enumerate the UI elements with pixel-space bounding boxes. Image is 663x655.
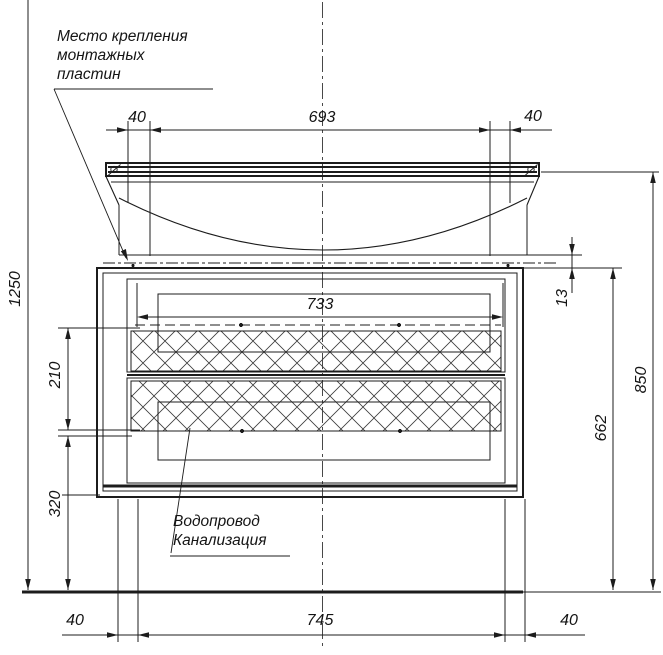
technical-drawing: Место крепления монтажных пластин Водопр… [0, 0, 663, 655]
dim-top-693: 693 [309, 109, 336, 127]
plumbing-note: Водопровод Канализация [173, 512, 267, 550]
dim-1250: 1250 [7, 271, 25, 307]
dim-top-40-right: 40 [524, 108, 542, 126]
dim-13: 13 [554, 289, 572, 307]
plumbing-note-line-2: Канализация [173, 531, 267, 550]
basin-curve [119, 198, 527, 250]
rim-corner-detail [109, 165, 538, 176]
mounting-plate-mark-left [131, 264, 134, 267]
dim-662: 662 [593, 415, 611, 442]
dim-320: 320 [47, 491, 65, 518]
plumbing-note-line-1: Водопровод [173, 512, 267, 531]
dim-bottom-40-right: 40 [560, 612, 578, 630]
mounting-note-leader [54, 89, 126, 258]
mounting-plate-mark-right [506, 264, 509, 267]
dimension-lines [28, 0, 653, 635]
dim-bottom-745: 745 [307, 612, 334, 630]
mounting-note-line-1: Место крепления [57, 27, 188, 46]
dim-bottom-40-left: 40 [66, 612, 84, 630]
mounting-note-line-2: монтажных [57, 46, 188, 65]
mounting-note-line-3: пластин [57, 65, 188, 84]
upper-hatch-band [131, 331, 501, 371]
mounting-note: Место крепления монтажных пластин [57, 27, 188, 84]
dim-top-40-left: 40 [128, 109, 146, 127]
dim-210: 210 [47, 362, 65, 389]
dim-733: 733 [307, 296, 334, 314]
drawing-canvas [0, 0, 663, 655]
dim-850: 850 [633, 367, 651, 394]
